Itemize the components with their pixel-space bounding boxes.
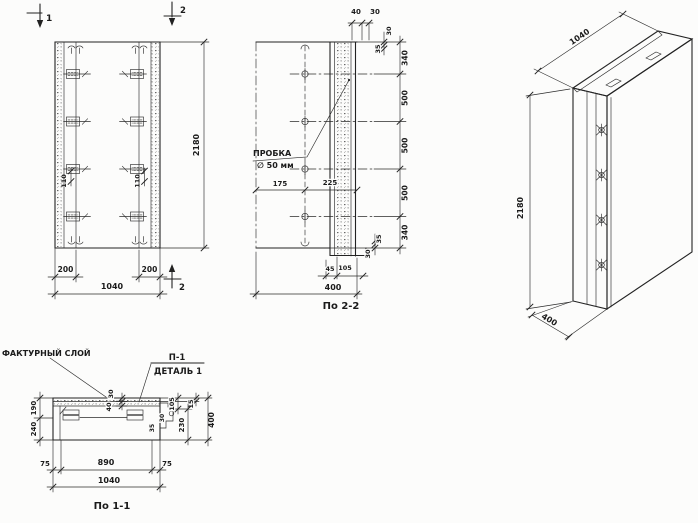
facing-layer-note: ФАКТУРНЫЙ СЛОЙ — [2, 347, 106, 397]
plug-note-line2: ∅ 50 мм — [257, 161, 294, 170]
dim-off-top-a: 30 — [385, 26, 393, 36]
facing-layer-label: ФАКТУРНЫЙ СЛОЙ — [2, 347, 91, 358]
dim-seg-2: 500 — [401, 90, 410, 106]
cut-label-1: 1 — [46, 14, 52, 24]
dim-left-bot: 240 — [30, 422, 38, 437]
front-view: 1 2 2 2180 110 110 — [27, 2, 209, 299]
section2-caption: По 2-2 — [323, 301, 360, 312]
section2-plugs — [290, 45, 374, 246]
leader-line — [139, 364, 151, 402]
drawing-sheet: 1 2 2 2180 110 110 — [0, 0, 698, 523]
dim-plug-right: 225 — [323, 179, 338, 187]
section-mark-2-bottom: 2 — [164, 264, 185, 293]
panel-drawing: 1 2 2 2180 110 110 — [0, 0, 698, 523]
detail-note: П-1 ДЕТАЛЬ 1 — [139, 353, 204, 402]
panel-outline — [55, 42, 160, 248]
plug-pair-left — [63, 410, 79, 420]
dim-bot-mid: 890 — [98, 458, 115, 467]
dim-detail-a: 30 — [159, 414, 166, 422]
section-mark-1: 1 — [27, 4, 52, 28]
dim-off-bot-a: 35 — [375, 234, 383, 244]
dim-top-w1: 40 — [351, 8, 361, 16]
dim-bot-left: 75 — [40, 460, 50, 468]
axonometric-view: 1040 2180 400 — [516, 11, 692, 340]
dim-axon-width: 1040 — [568, 27, 592, 47]
section-1-1-view: ФАКТУРНЫЙ СЛОЙ П-1 ДЕТАЛЬ 1 190 240 30 4… — [2, 347, 216, 512]
dim-plug-left: 175 — [273, 180, 288, 188]
dim-bot-a: 45 — [325, 265, 335, 273]
dim-front-height: 2180 — [192, 133, 201, 156]
dim-bot-b: 105 — [338, 264, 352, 272]
dim-edge-left: 200 — [58, 265, 74, 274]
dim-edge-right: 200 — [142, 265, 158, 274]
plug-icon — [132, 237, 147, 245]
groove-hatch — [587, 91, 596, 306]
section1-caption: По 1-1 — [94, 501, 131, 512]
edge-hatch-left — [56, 43, 64, 247]
dim-detail-b: 35 — [149, 424, 156, 432]
wall-hatch — [336, 43, 351, 255]
dim-axon-height: 2180 — [516, 196, 525, 219]
detail-title-label: ДЕТАЛЬ 1 — [154, 367, 202, 377]
dim-off-bot-b: 30 — [364, 249, 372, 259]
dim-top-w2: 30 — [370, 8, 380, 16]
section-2-2-view: ПРОБКА ∅ 50 мм 40 30 30 35 — [250, 8, 410, 312]
dim-seg-4: 500 — [401, 185, 410, 201]
plug-socket — [646, 52, 661, 60]
dim-bot-right: 75 — [162, 460, 172, 468]
axon-body — [573, 31, 692, 309]
plug-star-icon — [597, 214, 607, 226]
dim-seg-5: 340 — [401, 225, 410, 241]
dim-seg-3: 500 — [401, 138, 410, 154]
plug-note-line1: ПРОБКА — [253, 149, 292, 158]
dim-layer-b: 40 — [105, 402, 113, 412]
cut-label-2: 2 — [179, 283, 185, 293]
dim-front-width: 1040 — [101, 282, 124, 291]
plug-star-icon — [597, 169, 607, 181]
dim-section2-width: 400 — [325, 283, 342, 292]
dim-plug-pitch-right: 110 — [134, 174, 142, 188]
dim-seg-1: 340 — [401, 50, 410, 66]
plug-socket — [606, 79, 621, 87]
dim-layer-a: 30 — [107, 389, 115, 399]
dim-left-top: 190 — [30, 401, 38, 416]
section1-outline — [53, 398, 174, 440]
plug-icon — [132, 46, 147, 54]
plug-icon — [68, 237, 83, 245]
plug-star-icon — [597, 259, 607, 271]
dim-right-top: 105 — [168, 397, 176, 411]
plug-star-icon — [597, 124, 607, 136]
plug-icon — [68, 46, 83, 54]
dim-off-top-b: 35 — [374, 44, 382, 54]
leader-line — [50, 358, 106, 397]
dim-right-total: 400 — [207, 412, 216, 428]
dim-plug-pitch-left: 110 — [60, 174, 68, 188]
dim-right-mid: 230 — [178, 418, 186, 433]
detail-ref-label: П-1 — [169, 353, 186, 363]
plug-pair-right — [127, 410, 143, 420]
cut-label-2: 2 — [180, 6, 186, 16]
dim-section1-width: 1040 — [98, 476, 121, 485]
section-mark-2-top: 2 — [164, 2, 186, 26]
edge-hatch-right — [151, 43, 159, 247]
